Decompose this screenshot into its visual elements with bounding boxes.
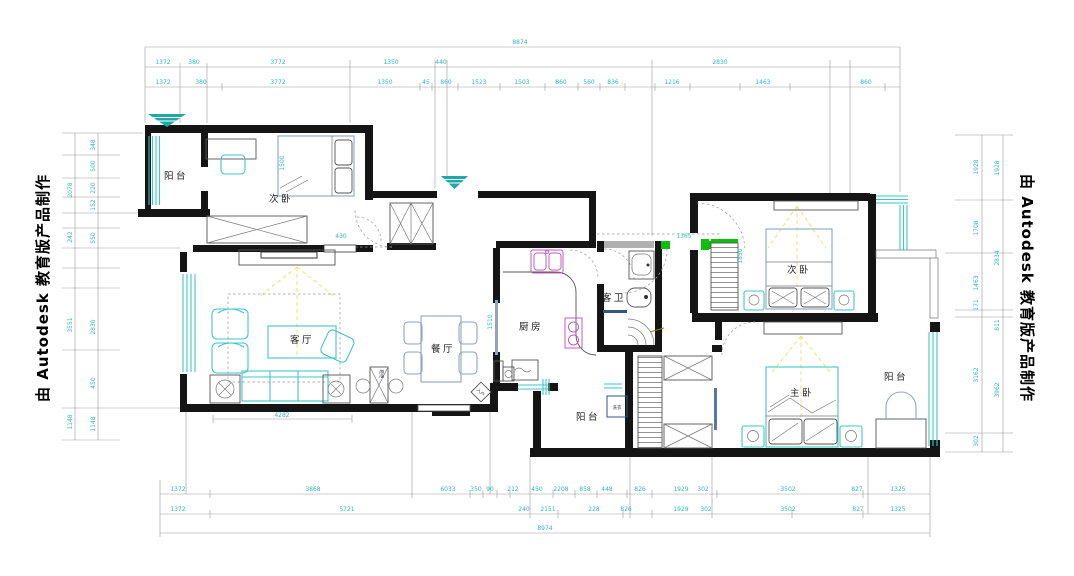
room-label-dining: 餐厅 (431, 343, 455, 355)
dim-text: 302 (700, 506, 712, 513)
living-room: 客厅 4282 (210, 250, 356, 423)
dim-text: 302 (973, 435, 980, 447)
dim-text: 6033 (440, 486, 455, 493)
dim-text: 220 (90, 182, 97, 194)
stool-icon (389, 379, 403, 393)
side-table-icon (323, 375, 350, 403)
dim-text: 2830 (712, 59, 727, 66)
dim-text: 440 (435, 59, 447, 66)
dim-text: 827 (852, 506, 864, 513)
dim-text: 1929 (673, 486, 688, 493)
dim-text: 1325 (890, 506, 905, 513)
pillow-icon (335, 168, 352, 193)
dim-text: 240 (518, 506, 530, 513)
dim-text: 1463 (973, 275, 980, 290)
cabinet-icon (876, 419, 926, 448)
armchair-icon (212, 343, 248, 373)
dim-text: 3772 (270, 79, 285, 86)
entry-diamond-label: 入户 (475, 387, 486, 398)
dim-text: 4282 (274, 412, 289, 419)
elevator-shaft-icon (390, 203, 433, 244)
dimension-lines-right: 1928 1708 1463 171 3162 302 1928 2834 81… (945, 135, 1013, 452)
dining-chair-icon (459, 322, 477, 344)
dim-text: 2208 (553, 486, 568, 493)
nightstand-icon (840, 426, 862, 447)
room-label-bedroom-tr: 次卧 (787, 264, 811, 276)
dim-text: 826 (634, 486, 646, 493)
dim-text: 826 (620, 506, 632, 513)
dim-text: 1216 (664, 79, 679, 86)
balcony-right: 阳台 (876, 371, 926, 448)
cad-floorplan-canvas: 由 Autodesk 教育版产品制作 由 Autodesk 教育版产品制作 88… (0, 0, 1074, 576)
nightstand-icon (744, 291, 764, 310)
dim-text: 152 (90, 199, 97, 211)
dim-text: 827 (851, 486, 863, 493)
dim-text: 500 (90, 160, 97, 172)
dim-text: 2830 (90, 319, 97, 334)
dim-text: 1372 (170, 506, 185, 513)
nightstand-icon (834, 291, 854, 310)
dimension-lines-left: 2078 242 3551 1148 348 500 220 152 550 2… (62, 133, 180, 440)
bedroom-top-right: 次卧 1850 (711, 201, 858, 310)
dim-text: 1372 (155, 79, 170, 86)
stool-icon (356, 379, 370, 393)
dim-text: 1463 (755, 79, 770, 86)
watermark-left-text: 由 Autodesk 教育版产品制作 (34, 174, 52, 402)
dim-top-total: 8874 (512, 39, 527, 46)
wardrobe-icon (711, 243, 738, 310)
dim-text: 560 (583, 79, 595, 86)
dim-text: 858 (579, 486, 591, 493)
dim-text: 350 (470, 486, 482, 493)
dim-text: 242 (67, 231, 74, 243)
room-label-bedroom-tl: 次卧 (269, 193, 293, 205)
tv-cabinet-icon (774, 201, 858, 210)
dim-text: 1928 (973, 159, 980, 174)
dining-chair-icon (459, 352, 477, 374)
dim-text: 5721 (339, 506, 354, 513)
dim-text: 3772 (270, 59, 285, 66)
dim-text: 2078 (67, 182, 74, 197)
dim-text: 228 (588, 506, 600, 513)
walls (138, 125, 940, 457)
dim-text: 380 (195, 79, 207, 86)
balcony-top-left: 阳台 (164, 170, 188, 182)
dim-text: 2151 (540, 506, 555, 513)
dim-text: 2834 (994, 250, 1001, 265)
green-marker-icon (701, 239, 709, 250)
dim-text: 1365 (676, 233, 691, 240)
bedroom-top-left: 次卧 430 1500 (206, 136, 356, 252)
dining-chair-icon (404, 322, 422, 344)
rug-outline (228, 294, 340, 382)
dim-text: 1928 (994, 160, 1001, 175)
master-bedroom: 主卧 (742, 322, 862, 447)
watermark-right-text: 由 Autodesk 教育版产品制作 (1018, 174, 1036, 402)
dim-bottom-total: 8974 (537, 525, 552, 532)
dim-text: 45 (422, 79, 430, 86)
kitchen: 厨房 1510 (487, 250, 596, 381)
dim-text: 1350 (383, 59, 398, 66)
cloakroom (638, 356, 717, 448)
dim-text: 3502 (780, 486, 795, 493)
dim-text: 836 (607, 79, 619, 86)
dim-text: 3962 (994, 382, 1001, 397)
guest-bathroom: 客卫 1365 (602, 233, 692, 345)
dim-text: 1929 (673, 506, 688, 513)
chair-icon (221, 155, 245, 174)
dim-text: 1372 (170, 486, 185, 493)
dim-text: 348 (90, 139, 97, 151)
room-label-master: 主卧 (790, 387, 814, 399)
balcony-middle: 洗衣 阳台 (576, 396, 627, 423)
dim-text: 450 (531, 486, 543, 493)
dim-text: 302 (697, 486, 709, 493)
dim-text: 1148 (90, 416, 97, 431)
floorplan-drawing: 由 Autodesk 教育版产品制作 由 Autodesk 教育版产品制作 88… (0, 0, 1074, 576)
tv-cabinet-icon (764, 322, 842, 334)
armchair-icon (212, 309, 248, 339)
dim-text: 1503 (514, 79, 529, 86)
dim-text: 1523 (471, 79, 486, 86)
bed-icon (278, 136, 354, 196)
wardrobe-icon (638, 356, 662, 448)
dim-text: 1850 (737, 248, 744, 263)
room-label-balcony-tl: 阳台 (164, 170, 188, 182)
fridge-icon (512, 360, 538, 380)
dim-text: 1325 (890, 486, 905, 493)
dim-text: 380 (188, 59, 200, 66)
section-marker-icon (441, 176, 468, 189)
desk-icon (206, 139, 256, 159)
dim-text: 860 (860, 79, 872, 86)
dim-text: 3551 (67, 317, 74, 332)
dim-text: 1350 (377, 79, 392, 86)
dimension-lines-top: 8874 1372 380 3772 1350 440 2830 1372 38… (145, 39, 900, 236)
dim-text: 448 (601, 486, 613, 493)
dim-text: 1372 (155, 59, 170, 66)
dining-chair-icon (404, 352, 422, 374)
room-label-living: 客厅 (290, 334, 314, 346)
dining-room: 鞋柜 入户 餐厅 (356, 316, 491, 403)
dim-text: 1148 (67, 414, 74, 429)
washer-label: 洗衣 (613, 404, 622, 411)
watermark-right: 由 Autodesk 教育版产品制作 (1018, 174, 1036, 402)
door-threshold (324, 245, 356, 252)
green-marker-icon (661, 241, 670, 249)
watermark-left: 由 Autodesk 教育版产品制作 (34, 174, 52, 402)
tv-icon (261, 252, 317, 258)
tile-strip (603, 310, 627, 313)
room-label-balcony-right: 阳台 (884, 371, 908, 383)
room-label-balcony-mid: 阳台 (576, 411, 600, 423)
room-label-guest-bath: 客卫 (602, 292, 626, 304)
sliding-door (714, 388, 717, 430)
dim-text: 1500 (279, 155, 286, 170)
dim-text: 171 (973, 299, 980, 311)
dim-text: 212 (507, 486, 519, 493)
dimension-lines-bottom: 1372 3868 6033 350 90 212 450 2208 858 4… (160, 412, 930, 537)
dim-text: 3502 (780, 506, 795, 513)
dim-text: 430 (335, 233, 347, 240)
basin-icon (886, 392, 916, 419)
dim-text: 450 (90, 377, 97, 389)
dim-text: 1510 (487, 314, 494, 329)
dim-text: 860 (440, 79, 452, 86)
dim-text: 90 (486, 486, 494, 493)
dim-text: 3868 (305, 486, 320, 493)
dim-text: 3162 (973, 367, 980, 382)
nightstand-icon (742, 426, 764, 447)
pillow-icon (335, 140, 352, 165)
room-label-kitchen: 厨房 (519, 321, 543, 333)
dim-text: 550 (90, 232, 97, 244)
dim-text: 860 (555, 79, 567, 86)
sofa-icon (242, 371, 328, 401)
shoe-cabinet-label: 鞋柜 (378, 370, 385, 379)
dim-text: 1708 (973, 220, 980, 235)
dim-text: 811 (994, 319, 1001, 331)
